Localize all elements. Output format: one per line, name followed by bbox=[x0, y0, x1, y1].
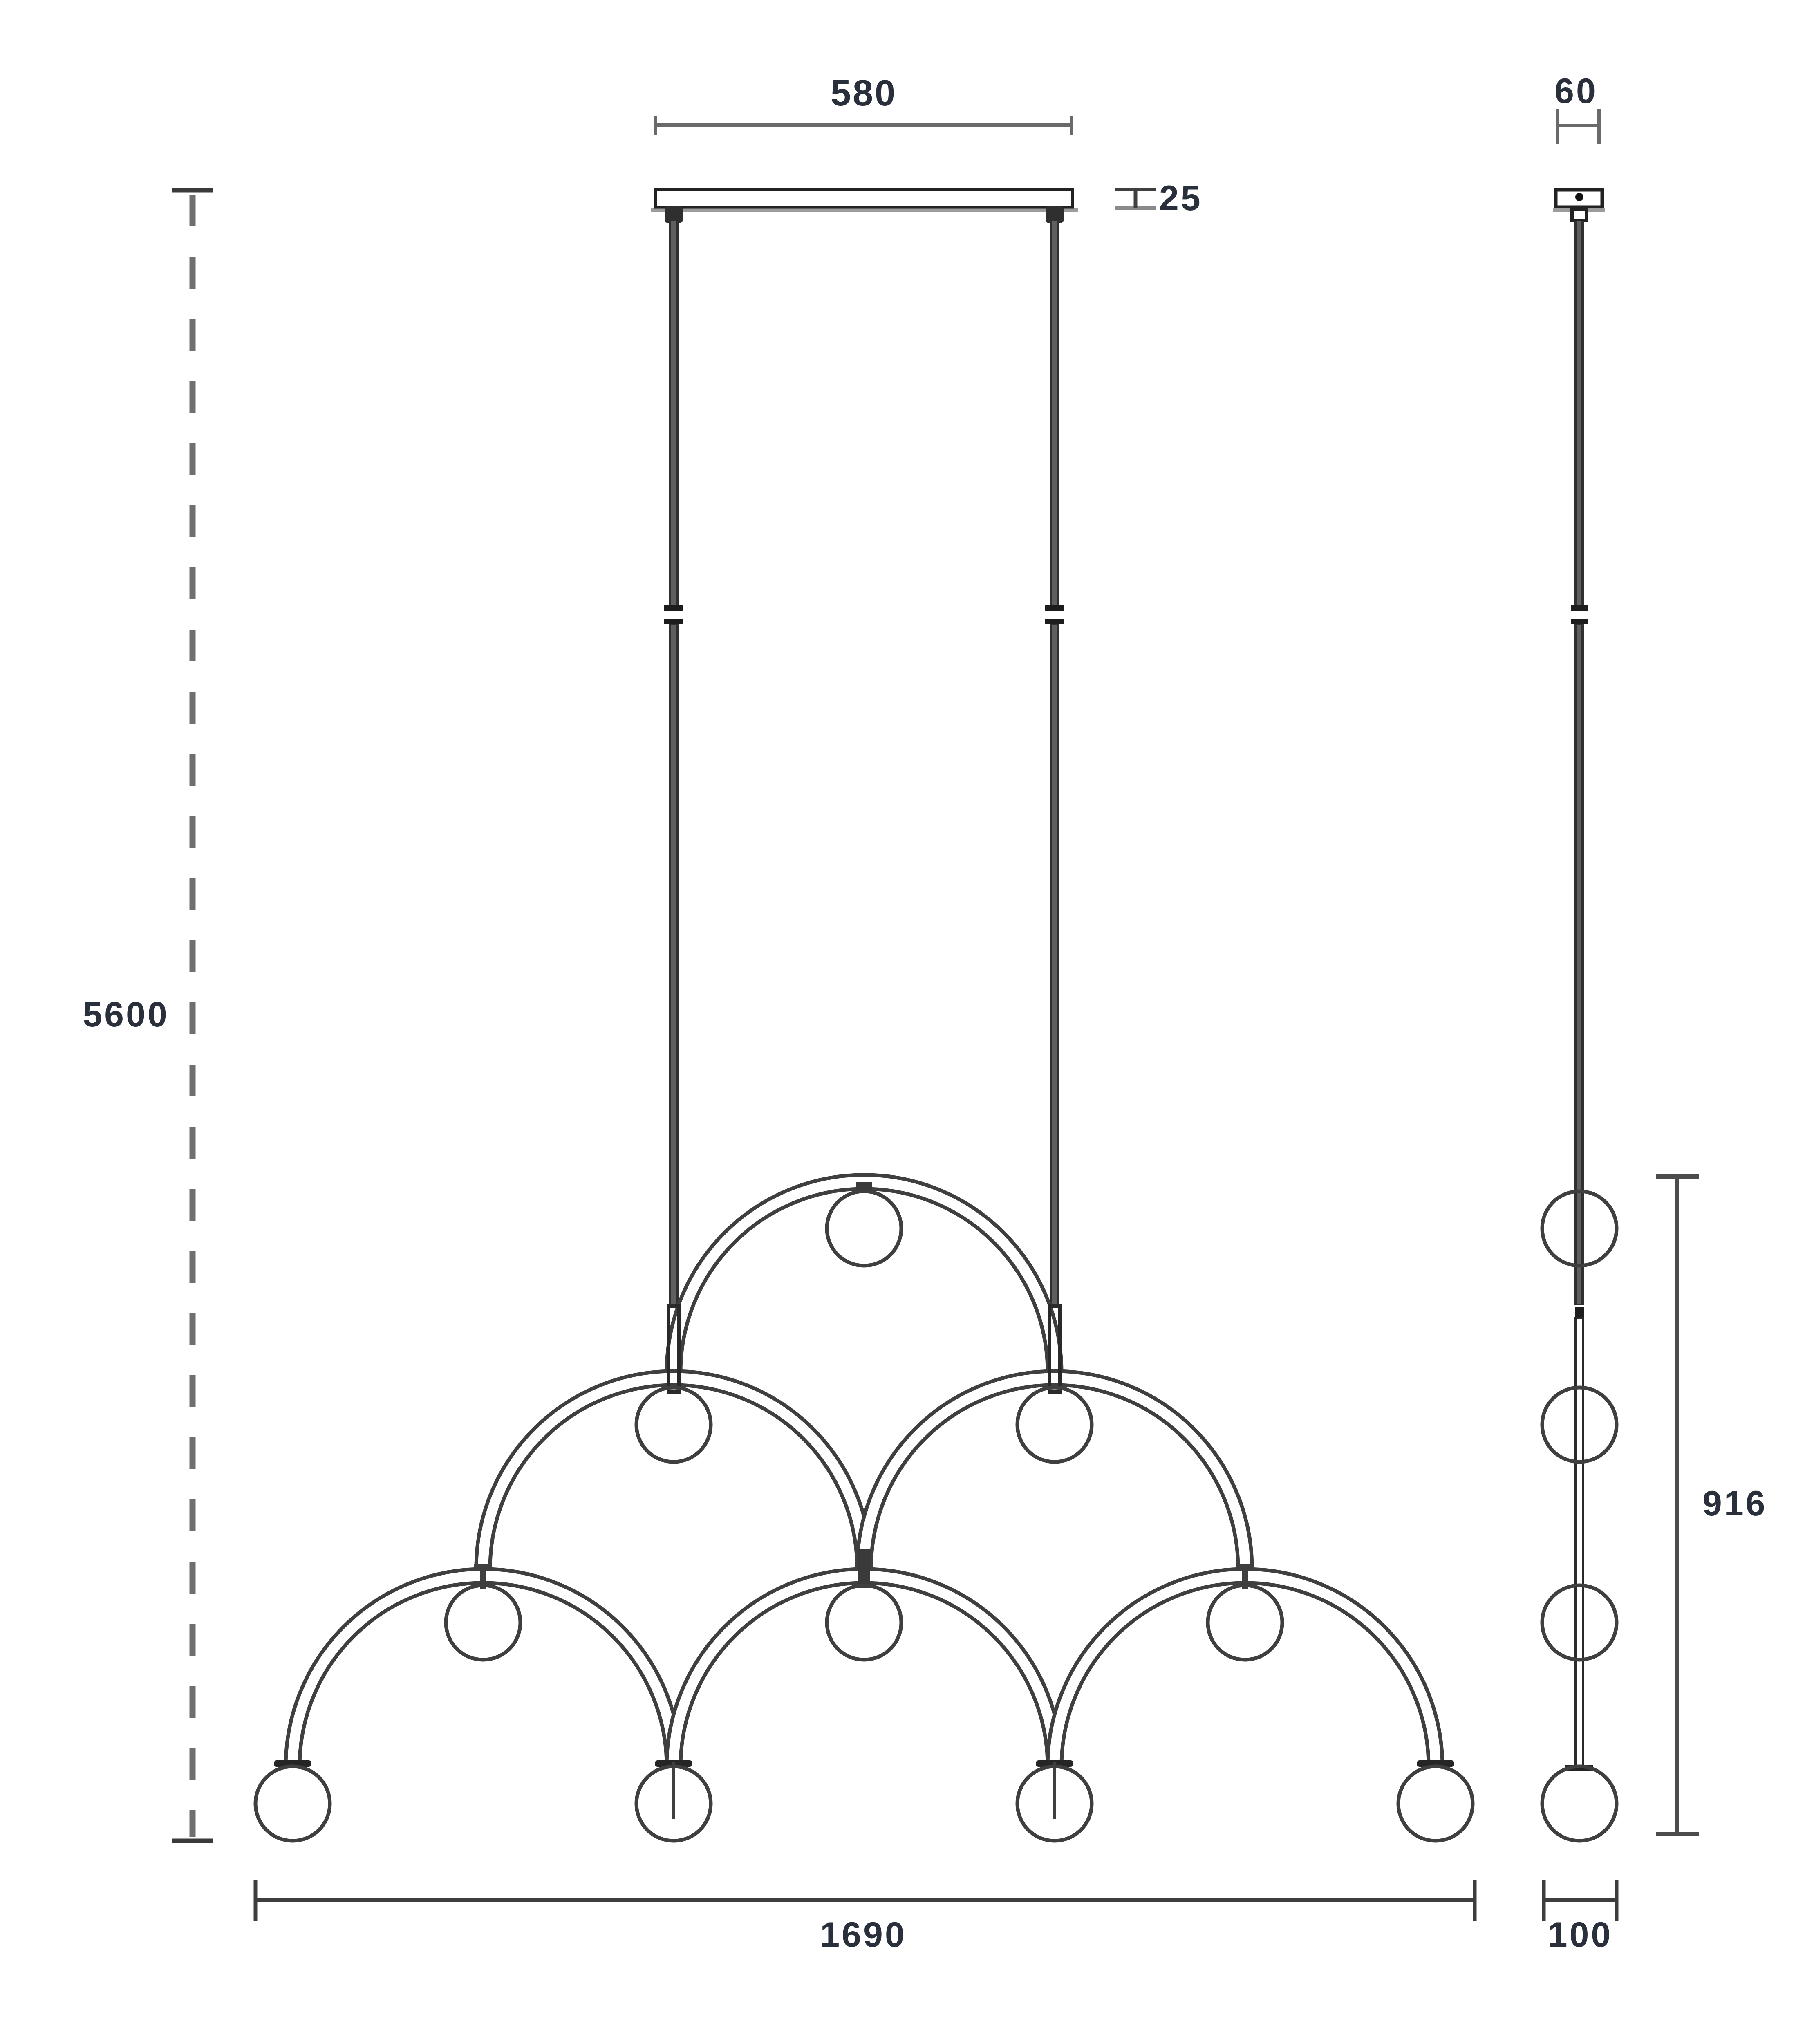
svg-text:25: 25 bbox=[1159, 179, 1203, 218]
svg-text:1690: 1690 bbox=[820, 1915, 906, 1954]
svg-text:60: 60 bbox=[1554, 72, 1598, 111]
svg-text:100: 100 bbox=[1548, 1915, 1613, 1954]
svg-text:5600: 5600 bbox=[83, 995, 169, 1034]
svg-text:580: 580 bbox=[831, 73, 897, 114]
svg-text:916: 916 bbox=[1702, 1484, 1767, 1523]
